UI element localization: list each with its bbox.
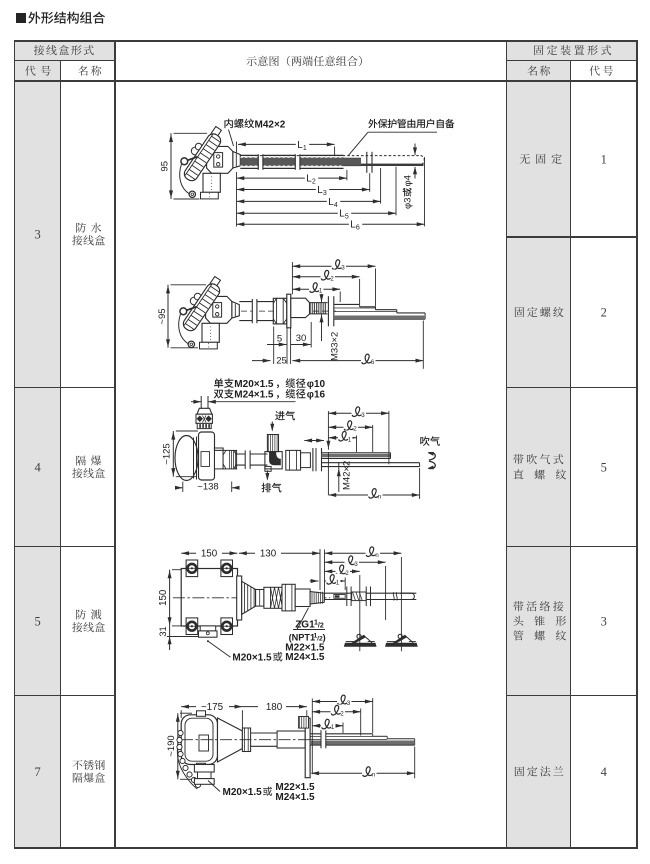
- svg-text:M42×2: M42×2: [341, 461, 352, 490]
- svg-text:φ16: φ16: [307, 390, 326, 401]
- svg-text:φ10: φ10: [307, 379, 326, 390]
- svg-text:30: 30: [296, 333, 307, 344]
- svg-text:~95: ~95: [157, 308, 168, 324]
- svg-text:2: 2: [601, 306, 607, 320]
- svg-text:M24×1.5: M24×1.5: [285, 652, 325, 663]
- svg-text:M24×1.5: M24×1.5: [234, 390, 274, 401]
- svg-text:(NPT1: (NPT1: [289, 632, 316, 642]
- svg-text:5: 5: [601, 460, 607, 474]
- svg-text:~138: ~138: [197, 481, 218, 492]
- svg-text:3: 3: [34, 228, 40, 242]
- svg-text:M24×1.5: M24×1.5: [275, 792, 315, 803]
- svg-text:M20×1.5: M20×1.5: [232, 653, 272, 664]
- svg-text:φ3: φ3: [403, 198, 414, 209]
- svg-text:130: 130: [260, 549, 277, 560]
- svg-text:n: n: [372, 773, 375, 779]
- svg-text:5: 5: [277, 334, 282, 345]
- svg-text:n: n: [378, 495, 381, 501]
- svg-text:150: 150: [158, 589, 169, 606]
- svg-text:4: 4: [34, 460, 41, 474]
- svg-text:~190: ~190: [166, 735, 177, 756]
- svg-text:7: 7: [34, 765, 40, 779]
- svg-text:~125: ~125: [162, 443, 173, 464]
- svg-text:M20×1.5: M20×1.5: [223, 787, 263, 798]
- svg-text:1/2: 1/2: [314, 620, 324, 630]
- svg-text:4: 4: [601, 765, 608, 779]
- svg-text:180: 180: [266, 702, 283, 713]
- svg-text:1: 1: [601, 152, 607, 166]
- svg-text:150: 150: [201, 549, 218, 560]
- svg-text:25: 25: [276, 356, 287, 367]
- svg-text:M33×2: M33×2: [330, 332, 341, 361]
- svg-text:n: n: [375, 553, 378, 559]
- svg-text:1/2): 1/2): [314, 632, 326, 642]
- svg-text:ZG1: ZG1: [295, 620, 315, 631]
- svg-text:M42×2: M42×2: [255, 119, 286, 130]
- svg-text:φ4: φ4: [403, 175, 414, 186]
- svg-text:95: 95: [159, 161, 170, 172]
- svg-text:M20×1.5: M20×1.5: [234, 379, 274, 390]
- svg-text:5: 5: [34, 614, 40, 628]
- svg-text:31: 31: [158, 626, 168, 636]
- svg-text:3: 3: [601, 614, 607, 628]
